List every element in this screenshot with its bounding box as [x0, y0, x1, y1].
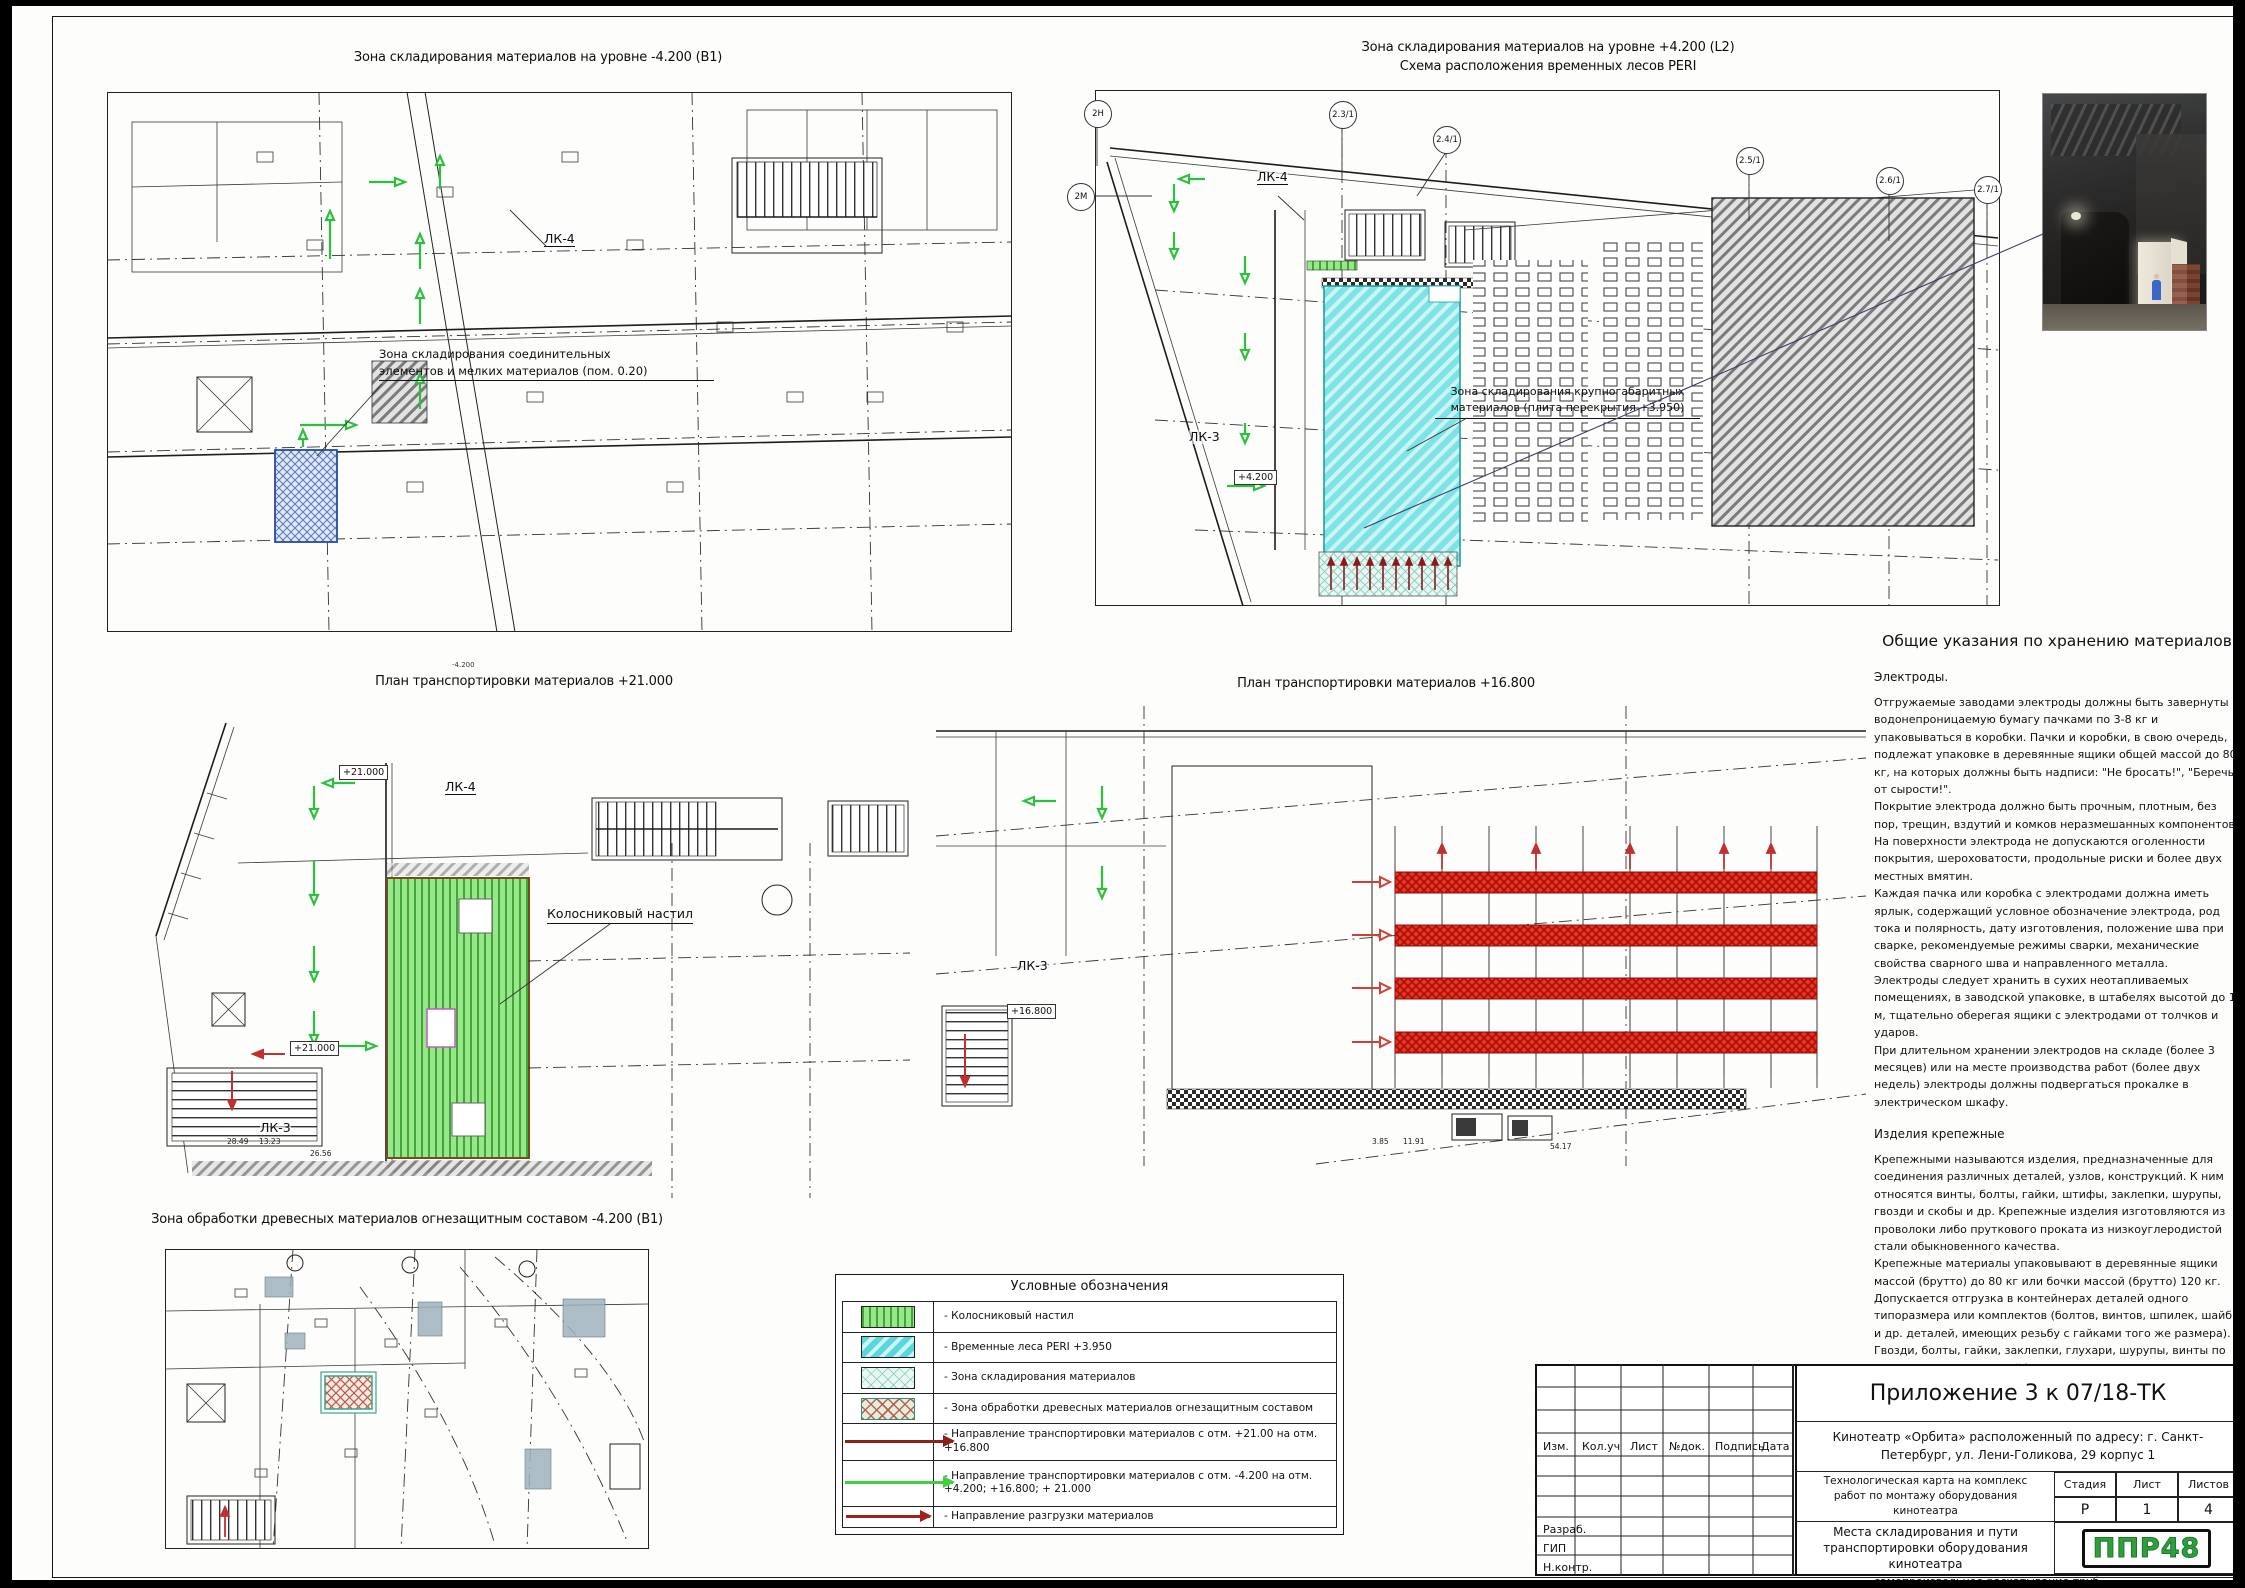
plan1-lk4-label: ЛК-4 — [544, 232, 575, 247]
transport-green-arrow — [845, 1481, 953, 1484]
dim-label: 28.49 — [227, 1137, 248, 1146]
plan2-linework — [1095, 90, 2000, 606]
col-podpis: Подпись — [1715, 1441, 1764, 1452]
plan3-lk3-label: ЛК-3 — [260, 1121, 291, 1135]
plan3-zone-label: Колосниковый настил — [547, 905, 693, 924]
notes-body-electrodes: Отгружаемые заводами электроды должны бы… — [1874, 694, 2233, 1111]
col-ndok: №док. — [1669, 1441, 1705, 1452]
grid-bubble-2-5: 2.5/1 — [1736, 147, 1764, 175]
grid-bubble-2-7: 2.7/1 — [1974, 176, 2002, 204]
plan2-lk3-label: ЛК-3 — [1189, 430, 1220, 444]
legend-label: - Временные леса PERI +3.950 — [934, 1332, 1337, 1363]
title-block: Изм. Кол.уч Лист №док. Подпись Дата Разр… — [1535, 1364, 2233, 1576]
legend-label: - Зона складирования материалов — [934, 1363, 1337, 1394]
logo-cell: ППР48 — [2054, 1522, 2233, 1574]
legend-row: - Направление транспортировки материалов… — [843, 1424, 1337, 1461]
dim-label: 13.23 — [259, 1137, 280, 1146]
green-arrows — [1024, 786, 1106, 898]
plan3-minor-elev: -4.200 — [452, 661, 475, 669]
plan3-title: План транспортировки материалов +21.000 — [324, 674, 724, 689]
legend-row: - Направление транспортировки материалов… — [843, 1460, 1337, 1506]
dim-label: 3.85 — [1372, 1137, 1389, 1146]
plan1-annotation: Зона складирования соединительных элемен… — [379, 346, 714, 381]
legend-row: - Направление разгрузки материалов — [843, 1506, 1337, 1527]
role-razrab: Разраб. — [1543, 1524, 1586, 1535]
site-photo — [2042, 93, 2207, 331]
dim-label: 54.17 — [1550, 1142, 1571, 1151]
dim-label: 11.91 — [1403, 1137, 1424, 1146]
legend-label: - Зона обработки древесных материалов ог… — [934, 1393, 1337, 1424]
zone-unloading — [1319, 552, 1457, 596]
plan-storage-minus-4200: .w{stroke:#1c1c1c;stroke-width:1.6;fill:… — [107, 92, 1012, 632]
grid-bubble-2-4: 2.4/1 — [1433, 126, 1461, 154]
stage-label: Стадия — [2054, 1472, 2116, 1497]
notes-heading-fasteners: Изделия крепежные — [1874, 1127, 2233, 1141]
plan3-lk4-label: ЛК-4 — [445, 780, 476, 795]
sheets-value: 4 — [2178, 1497, 2233, 1522]
object-address: Кинотеатр «Орбита» расположенный по адре… — [1795, 1422, 2233, 1472]
zone-small-materials — [275, 450, 337, 542]
col-koluch: Кол.уч — [1582, 1441, 1620, 1452]
notes-title: Общие указания по хранению материалов — [1874, 632, 2233, 650]
role-gip: ГИП — [1543, 1543, 1566, 1554]
fireproof-swatch — [861, 1398, 915, 1420]
drawing-sheet: { "page": { "format_label": "Формат А2" … — [0, 0, 2245, 1588]
unloading-arrow — [846, 1515, 930, 1518]
band-entry-arrows — [1352, 877, 1390, 1047]
col-data: Дата — [1761, 1441, 1789, 1452]
photo-floor — [2043, 304, 2206, 330]
appendix-title: Приложение 3 к 07/18-ТК — [1795, 1366, 2233, 1422]
plan2-lk4-label: ЛК-4 — [1257, 170, 1288, 185]
doc-title: Технологическая карта на комплекс работ … — [1795, 1472, 2054, 1522]
plan4-linework — [936, 706, 1866, 1166]
sheet-label: Лист — [2116, 1472, 2178, 1497]
legend-label: - Направление транспортировки материалов… — [934, 1460, 1337, 1506]
plan4-lk3-label: ЛК-3 — [1017, 959, 1048, 973]
plan2-title-1: Зона складирования материалов на уровне … — [1168, 40, 1928, 55]
legend: Условные обозначения - Колосниковый наст… — [835, 1274, 1344, 1535]
legend-row: - Зона складирования материалов — [843, 1363, 1337, 1394]
plan2-elev-tag: +4.200 — [1234, 470, 1277, 485]
plan-wood-treatment: Зона обработки древесных материалов огне… — [165, 1249, 649, 1549]
legend-label: - Направление транспортировки материалов… — [934, 1424, 1337, 1461]
grid-bubble-2m: 2М — [1067, 183, 1095, 211]
grid-bubble-2-6: 2.6/1 — [1876, 167, 1904, 195]
plan-transport-21000: План транспортировки материалов +21.000 … — [148, 703, 910, 1198]
plan5-linework — [165, 1249, 649, 1549]
plan1-title: Зона складирования материалов на уровне … — [193, 50, 883, 65]
photo-worker — [2152, 280, 2161, 300]
role-nkontr: Н.контр. — [1543, 1562, 1592, 1573]
dim-label: 26.56 — [310, 1149, 331, 1158]
plan-storage-plus-4200: Зона складирования материалов на уровне … — [1095, 90, 2000, 606]
sheet-title: Места складирования и пути транспортиров… — [1795, 1522, 2054, 1574]
zone-slab-storage — [1712, 198, 1974, 526]
plan4-elev-tag: +16.800 — [1007, 1004, 1056, 1019]
zone-fireproof-treatment — [325, 1376, 372, 1409]
plan2-annotation: Зона складирования крупногабаритных мате… — [1435, 384, 1700, 419]
stage-value: Р — [2054, 1497, 2116, 1522]
sheet-page: .w{stroke:#1c1c1c;stroke-width:1.6;fill:… — [12, 6, 2233, 1580]
grid-bubble-2-3: 2.3/1 — [1329, 101, 1357, 129]
notes-heading-electrodes: Электроды. — [1874, 670, 2233, 684]
legend-row: - Временные леса PERI +3.950 — [843, 1332, 1337, 1363]
grating-swatch — [861, 1306, 915, 1328]
col-list: Лист — [1630, 1441, 1658, 1452]
zone-peri-scaffold — [1324, 286, 1460, 566]
legend-row: - Колосниковый настил — [843, 1302, 1337, 1333]
photo-bricks — [2172, 264, 2200, 306]
legend-row: - Зона обработки древесных материалов ог… — [843, 1393, 1337, 1424]
red-transport-bands — [1395, 872, 1817, 1053]
plan2-title-2: Схема расположения временных лесов PERI — [1168, 59, 1928, 74]
sheets-label: Листов — [2178, 1472, 2233, 1497]
plan5-title: Зона обработки древесных материалов огне… — [127, 1212, 687, 1227]
grating-strip — [1307, 261, 1357, 270]
transport-21-arrow — [845, 1440, 953, 1443]
peri-swatch — [861, 1336, 915, 1358]
plan3-elev-top: +21.000 — [339, 765, 388, 780]
legend-label: - Направление разгрузки материалов — [934, 1506, 1337, 1527]
legend-label: - Колосниковый настил — [934, 1302, 1337, 1333]
photo-covered-equipment — [2061, 212, 2129, 314]
ppr48-logo: ППР48 — [2082, 1529, 2212, 1568]
stage-table: Стадия Лист Листов Р 1 4 — [2054, 1472, 2233, 1522]
plan3-elev-bottom: +21.000 — [290, 1041, 339, 1056]
sheet-value: 1 — [2116, 1497, 2178, 1522]
plan-transport-16800: План транспортировки материалов +16.800 … — [936, 706, 1866, 1166]
storage-swatch — [861, 1367, 915, 1389]
photo-lamp — [2071, 212, 2081, 220]
plan4-title: План транспортировки материалов +16.800 — [1186, 676, 1586, 691]
green-arrows — [310, 779, 376, 1050]
grid-bubble-2n: 2Н — [1084, 100, 1112, 128]
legend-title: Условные обозначения — [836, 1279, 1343, 1294]
format-label: Формат А2 — [2112, 1578, 2233, 1580]
col-izm: Изм. — [1543, 1441, 1569, 1452]
